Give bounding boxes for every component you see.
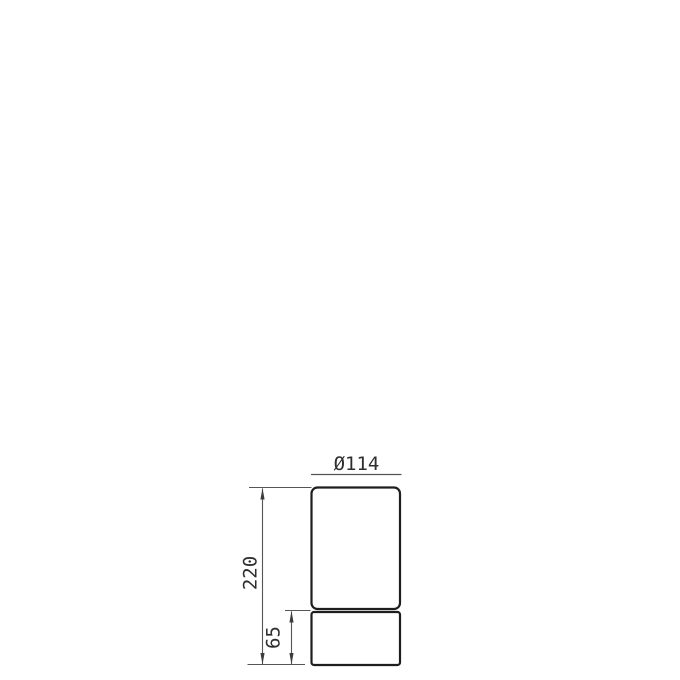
height-label: 220 xyxy=(240,556,262,590)
body-base-section xyxy=(312,612,401,665)
height-arrow-down-icon xyxy=(260,653,264,665)
technical-drawing-page: Ø114 220 65 xyxy=(0,0,680,680)
body-top-section xyxy=(312,488,401,610)
base-arrow-up-icon xyxy=(289,611,293,623)
diameter-label: Ø114 xyxy=(334,453,380,475)
base-height-label: 65 xyxy=(263,626,285,649)
base-arrow-down-icon xyxy=(289,653,293,665)
dimension-drawing: Ø114 220 65 xyxy=(0,0,680,680)
height-arrow-up-icon xyxy=(260,488,264,500)
